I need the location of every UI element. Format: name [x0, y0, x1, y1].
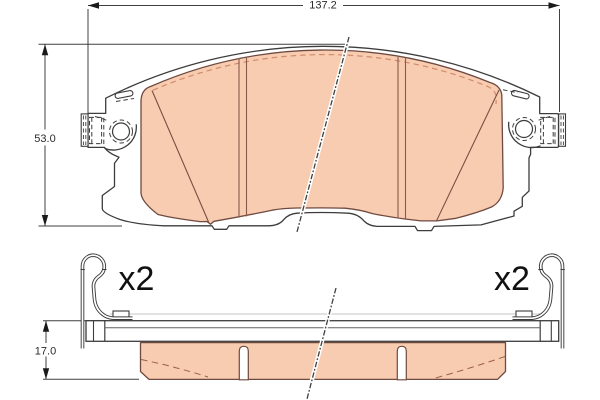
svg-text:137.2: 137.2: [309, 0, 337, 12]
svg-text:x2: x2: [119, 260, 155, 298]
svg-text:x2: x2: [494, 260, 530, 298]
svg-text:53.0: 53.0: [34, 133, 55, 145]
svg-text:17.0: 17.0: [35, 346, 56, 358]
